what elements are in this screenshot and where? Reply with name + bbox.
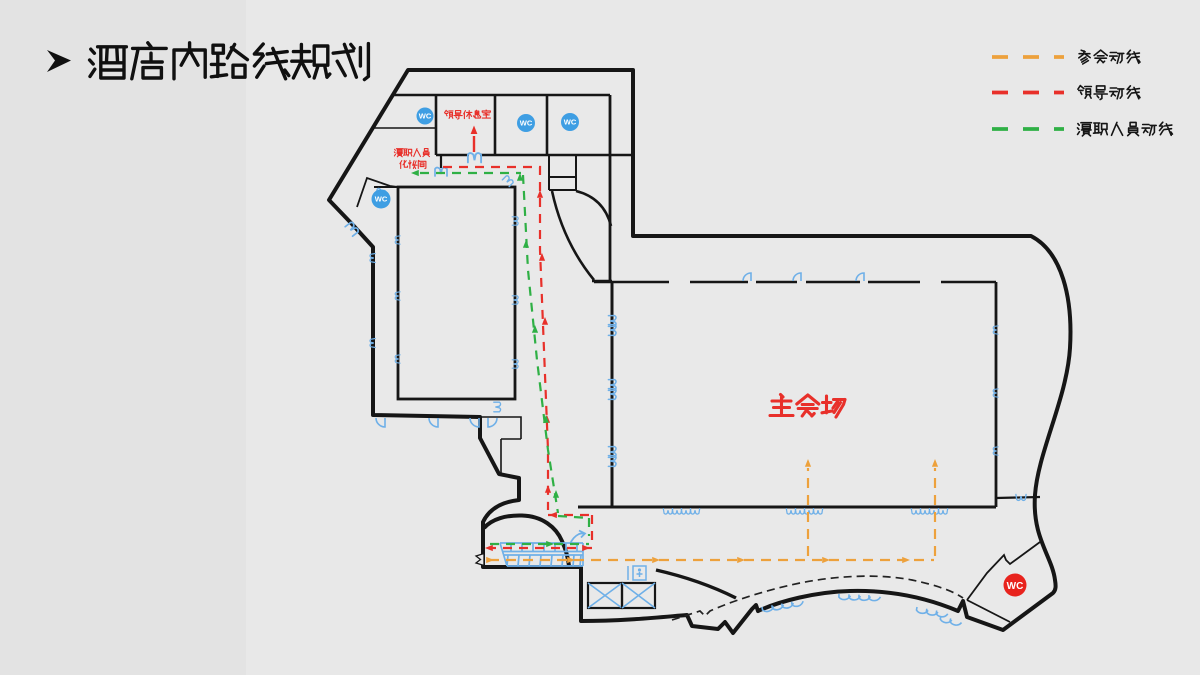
svg-text:WC: WC	[1007, 581, 1024, 592]
svg-text:WC: WC	[564, 118, 577, 127]
svg-text:WC: WC	[375, 195, 388, 204]
svg-text:WC: WC	[520, 119, 533, 128]
svg-text:WC: WC	[419, 112, 432, 121]
